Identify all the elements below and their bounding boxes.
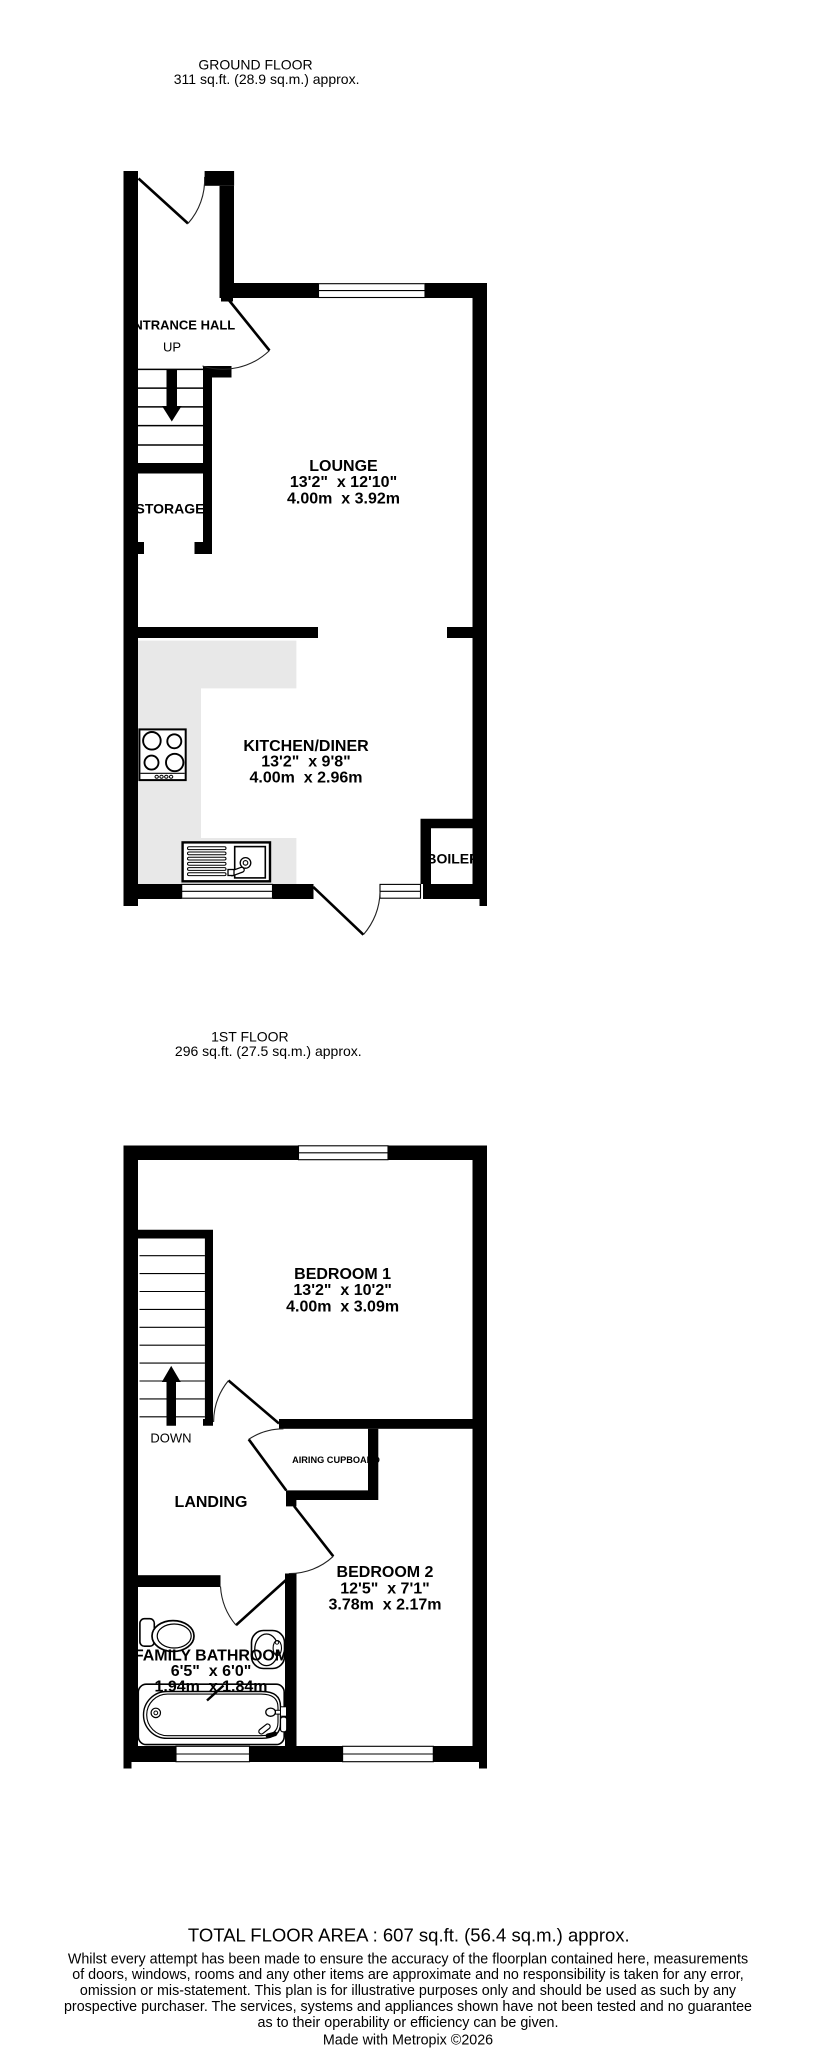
svg-text:13'2" x 9'8": 13'2" x 9'8" [261,754,351,771]
svg-text:4.00m x 2.96m: 4.00m x 2.96m [250,769,363,786]
svg-text:4.00m x 3.09m: 4.00m x 3.09m [286,1298,399,1315]
svg-text:STORAGE: STORAGE [136,501,205,517]
svg-text:BEDROOM 2: BEDROOM 2 [337,1564,434,1581]
svg-text:Whilst every attempt has been: Whilst every attempt has been made to en… [68,1951,748,1967]
svg-text:13'2" x 12'10": 13'2" x 12'10" [290,474,397,491]
svg-text:12'5" x 7'1": 12'5" x 7'1" [340,1580,430,1597]
svg-text:FAMILY BATHROOM: FAMILY BATHROOM [134,1647,288,1664]
svg-text:6'5" x 6'0": 6'5" x 6'0" [171,1663,252,1680]
svg-text:296 sq.ft. (27.5 sq.m.) approx: 296 sq.ft. (27.5 sq.m.) approx. [175,1043,362,1059]
svg-text:of doors, windows, rooms and a: of doors, windows, rooms and any other i… [72,1967,744,1983]
svg-text:BEDROOM 1: BEDROOM 1 [294,1266,391,1283]
svg-text:Made with Metropix ©2026: Made with Metropix ©2026 [323,2033,493,2048]
svg-text:omission or mis-statement. Thi: omission or mis-statement. This plan is … [80,1983,737,1999]
svg-text:AIRING CUPBOARD: AIRING CUPBOARD [292,1455,380,1465]
svg-text:3.78m x 2.17m: 3.78m x 2.17m [329,1596,442,1613]
svg-text:prospective purchaser. The ser: prospective purchaser. The services, sys… [64,1999,752,2015]
svg-text:UP: UP [163,339,181,354]
svg-text:1.94m x 1.84m: 1.94m x 1.84m [155,1679,268,1696]
svg-text:LANDING: LANDING [175,1494,248,1511]
svg-text:13'2" x 10'2": 13'2" x 10'2" [293,1282,391,1299]
svg-text:ENTRANCE HALL: ENTRANCE HALL [125,318,236,333]
svg-text:4.00m x 3.92m: 4.00m x 3.92m [287,490,400,507]
svg-text:BOILER: BOILER [426,851,479,867]
svg-text:LOUNGE: LOUNGE [309,458,378,475]
svg-text:311 sq.ft. (28.9 sq.m.) approx: 311 sq.ft. (28.9 sq.m.) approx. [174,71,360,87]
svg-text:DOWN: DOWN [150,1430,191,1445]
svg-text:as to their operability or eff: as to their operability or efficiency ca… [258,2015,559,2031]
svg-text:KITCHEN/DINER: KITCHEN/DINER [243,738,369,755]
svg-text:TOTAL FLOOR AREA : 607 sq.ft.: TOTAL FLOOR AREA : 607 sq.ft. (56.4 sq.m… [188,1924,630,1945]
